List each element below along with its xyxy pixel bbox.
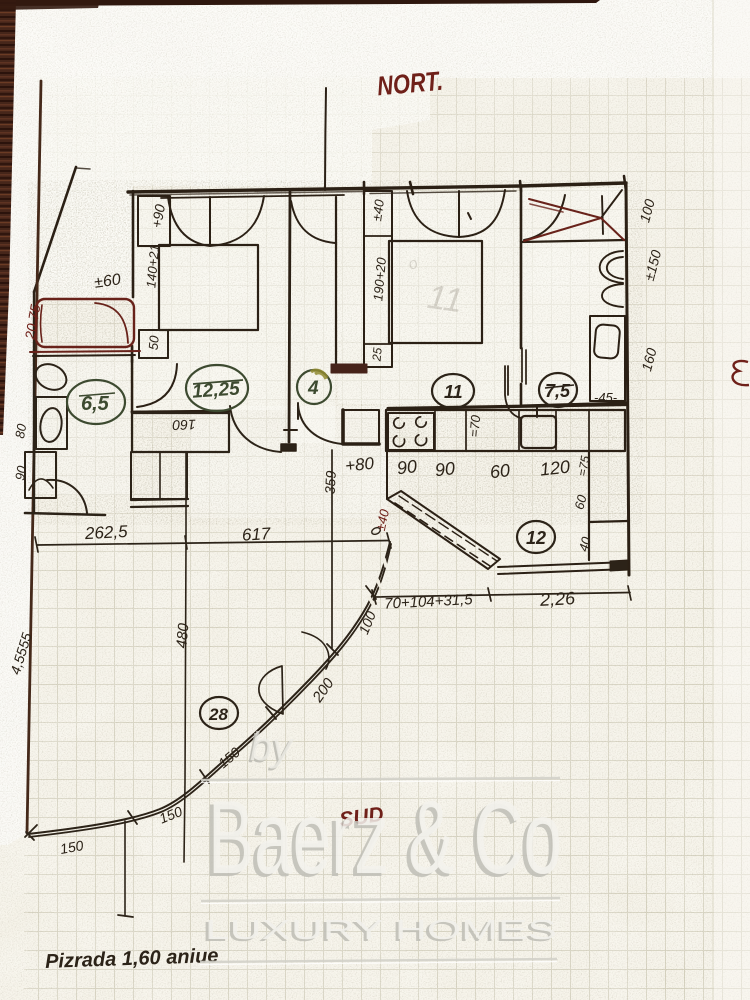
svg-text:359: 359	[322, 470, 339, 494]
svg-text:by: by	[250, 725, 295, 769]
svg-text:Baerz & Co: Baerz & Co	[208, 780, 562, 896]
svg-text:262,5: 262,5	[84, 522, 129, 543]
svg-text:11: 11	[444, 382, 463, 402]
svg-text:90: 90	[396, 456, 418, 478]
svg-text:LUXURY HOMES: LUXURY HOMES	[205, 914, 557, 945]
svg-text:4: 4	[307, 378, 319, 399]
svg-text:160: 160	[172, 417, 196, 434]
svg-text:-45-: -45-	[594, 390, 618, 405]
svg-text:+80: +80	[344, 454, 375, 476]
svg-text:12: 12	[526, 528, 546, 548]
svg-text:=70: =70	[466, 414, 483, 438]
svg-text:6,5: 6,5	[81, 393, 110, 415]
svg-text:60: 60	[489, 460, 511, 482]
svg-text:25: 25	[370, 347, 385, 363]
svg-text:120: 120	[539, 457, 571, 480]
svg-text:NORT.: NORT.	[376, 66, 444, 102]
svg-text:480: 480	[173, 622, 192, 649]
svg-text:90: 90	[434, 458, 456, 480]
svg-text:50: 50	[146, 334, 162, 350]
svg-text:7,5: 7,5	[545, 381, 571, 401]
svg-text:2,26: 2,26	[539, 588, 577, 610]
svg-text:11: 11	[425, 278, 465, 321]
svg-text:617: 617	[241, 524, 271, 544]
svg-text:±40: ±40	[369, 198, 387, 222]
svg-text:28: 28	[208, 705, 228, 724]
